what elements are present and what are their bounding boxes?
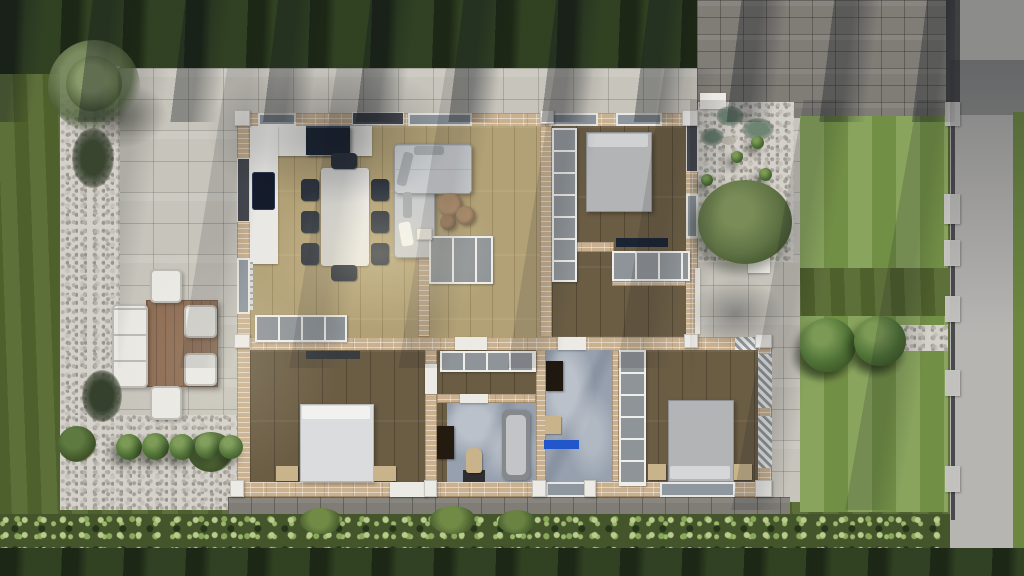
dining-chair [371, 179, 389, 201]
window [660, 482, 735, 497]
plant-dark-grass [82, 370, 122, 422]
entry-sill [695, 268, 700, 334]
fence-post [945, 296, 960, 322]
shower-stool [545, 416, 561, 434]
tree-top-left-inner [66, 56, 122, 112]
vanity-second-bath [546, 361, 563, 391]
wall-post [532, 480, 546, 497]
small-ball-bush [701, 174, 713, 186]
dining-chair [301, 243, 319, 265]
tv-panel [306, 351, 360, 359]
sofa-cushion [414, 146, 444, 155]
sliding-door-top [352, 112, 404, 125]
toilet-seat [466, 448, 482, 473]
outdoor-chair [150, 386, 182, 420]
wall-post [584, 480, 596, 497]
wardrobe-bedroomBR [619, 350, 646, 486]
fence-post [945, 466, 960, 492]
wall-post [234, 334, 250, 348]
bed-pillows [302, 406, 370, 419]
coffee-table [456, 206, 475, 225]
door-living-hall [455, 337, 487, 350]
gate-panel [946, 0, 960, 110]
sofa-cushion [403, 192, 412, 218]
vanity-main-bath [437, 426, 454, 459]
open-casement-window [758, 416, 772, 468]
window [686, 124, 698, 172]
terrace-door-left [237, 158, 250, 222]
fence-post [945, 102, 960, 126]
bed-pillows [588, 134, 648, 147]
dining-chair [371, 211, 389, 233]
dining-chair [301, 179, 319, 201]
round-bush [800, 318, 856, 372]
grass-tuft [700, 128, 724, 146]
back-door [390, 482, 428, 497]
street-slab-shadowed [953, 0, 1024, 115]
wall-post [755, 334, 772, 348]
back-lawn [0, 548, 1024, 576]
round-bush [854, 316, 906, 366]
window [616, 113, 662, 126]
blue-bath-mat [544, 440, 579, 449]
door-bath-main [460, 394, 488, 403]
boxwood-ball [116, 434, 142, 460]
wall-bath-bedroomBR [612, 350, 619, 482]
window [237, 258, 250, 314]
plant-dark-grass [72, 128, 114, 188]
hedge-bush [430, 506, 476, 534]
nightstand [648, 464, 666, 480]
outdoor-bench [112, 304, 148, 388]
nightstand [734, 464, 752, 480]
dining-chair [331, 265, 357, 281]
grass-tuft [716, 106, 744, 126]
nightstand [276, 466, 298, 481]
stone [722, 136, 736, 145]
outdoor-chair [184, 305, 217, 338]
wall-post [540, 110, 554, 124]
wardrobe-bedroomTR [552, 128, 577, 282]
sideboard [255, 315, 347, 342]
extractor-island [306, 126, 350, 155]
dining-chair [331, 153, 357, 169]
closet-hallway-lower [440, 351, 536, 372]
desk [616, 238, 668, 247]
fence-post [945, 370, 960, 396]
hedge-bush [498, 510, 536, 534]
bed-pillows [670, 466, 730, 479]
open-casement-window [758, 354, 772, 408]
wall-living-bedroomTR [540, 126, 552, 337]
wall-post [424, 480, 437, 497]
window [408, 113, 472, 126]
closet-row-study [612, 251, 690, 281]
window [546, 482, 586, 497]
wall-post [416, 228, 432, 240]
small-ball-bush [759, 168, 772, 181]
coffee-table [440, 214, 456, 230]
street-grass-edge [1013, 112, 1024, 576]
window [550, 113, 598, 126]
window [258, 113, 296, 126]
hedge-bush [300, 508, 342, 534]
dining-chair [301, 211, 319, 233]
door-foyer [558, 337, 586, 350]
boxwood-ball [219, 435, 243, 459]
outdoor-chair [150, 269, 182, 303]
small-ball-bush [731, 151, 743, 163]
outdoor-chair [184, 353, 217, 386]
closet-hallway-upper [429, 236, 493, 284]
wall-post [684, 334, 698, 348]
plant-bush [58, 426, 96, 462]
dining-table [321, 168, 369, 266]
wall-post [230, 480, 244, 497]
fence-post [944, 194, 960, 224]
large-bush [698, 180, 792, 264]
wall-post [682, 110, 698, 126]
boxwood-ball [142, 433, 169, 460]
wall-post [755, 480, 772, 497]
right-lawn-front [800, 116, 948, 268]
wall-post [234, 110, 250, 126]
small-ball-bush [751, 136, 764, 149]
nightstand [374, 466, 396, 481]
window [686, 194, 698, 238]
driveway [697, 0, 953, 118]
fence-post [944, 240, 960, 266]
dining-chair [371, 243, 389, 265]
boxwood-ball [169, 434, 195, 460]
boxwood-ball [195, 433, 221, 459]
door-bedroomBL [425, 364, 437, 394]
floorplan-render [0, 0, 1024, 576]
bathtub-inner [506, 415, 526, 475]
cooktop [252, 172, 275, 210]
